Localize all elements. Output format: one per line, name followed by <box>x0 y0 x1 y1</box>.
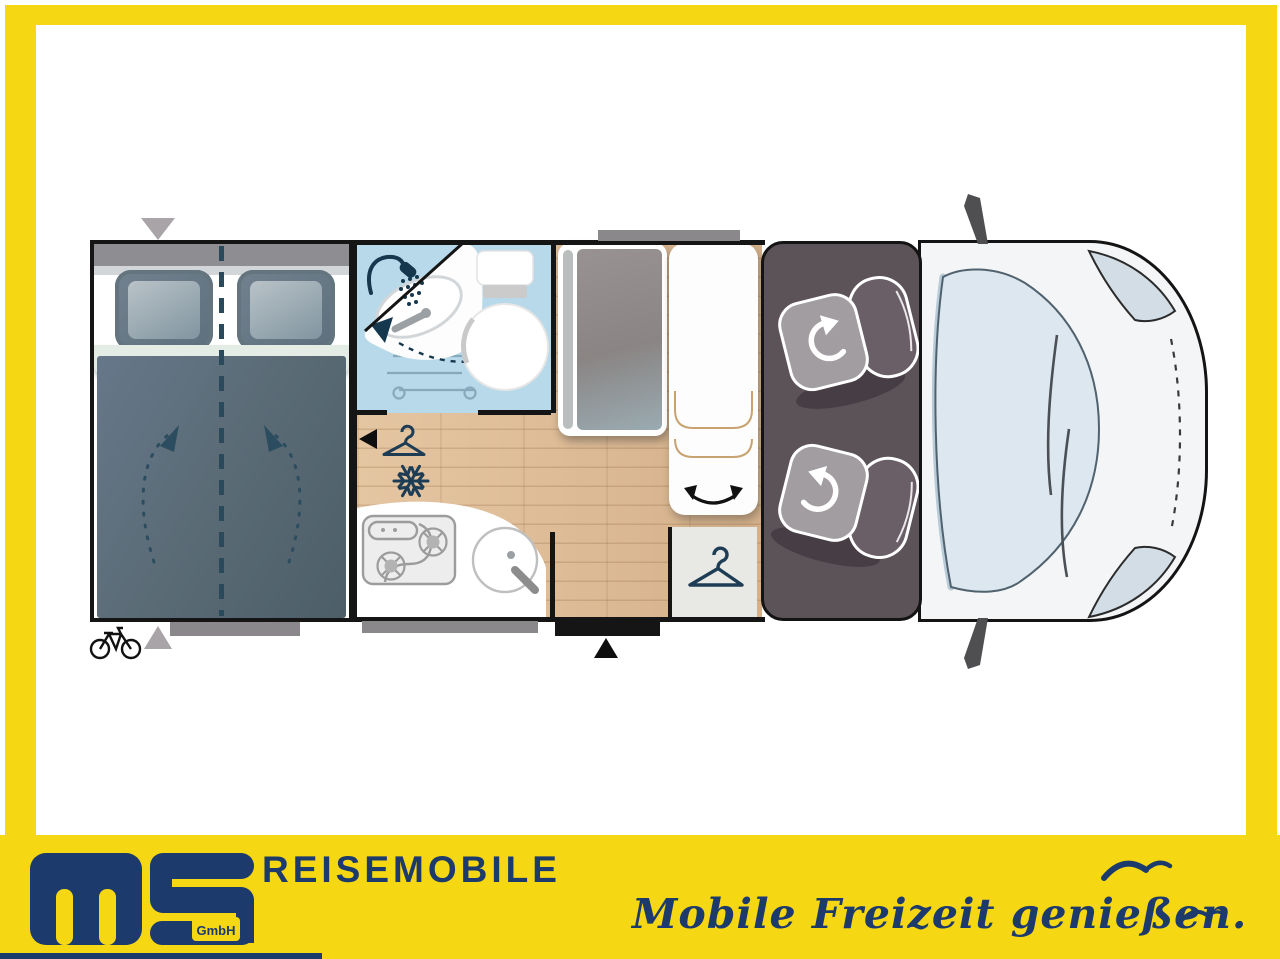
awning-bar <box>598 230 740 241</box>
bottom-edge-navy-strip <box>0 953 322 959</box>
motorhome-floorplan-advert: { "branding": { "company_line": "REISEMO… <box>0 0 1280 959</box>
headlight-left <box>1089 251 1175 321</box>
ms-gmbh-logo: GmbH <box>30 851 256 947</box>
bicycle-icon <box>88 622 144 660</box>
roof-vent-marker <box>141 218 175 240</box>
wardrobe-left-wall <box>668 527 672 619</box>
bench-seat <box>669 243 758 515</box>
table-side-rail <box>563 250 573 429</box>
side-mirror-left <box>956 190 1006 244</box>
kitchen-right-wall <box>550 532 555 620</box>
seagull-icons <box>1098 848 1230 934</box>
washroom-bottom-wall-left <box>357 410 387 415</box>
washroom-bottom-wall-right <box>478 410 551 415</box>
hood-line <box>1171 339 1180 531</box>
bench-rotate-arrow <box>691 495 736 503</box>
wardrobe <box>672 527 757 619</box>
kitchen-sink <box>473 528 537 592</box>
company-line: REISEMOBILE <box>262 849 561 891</box>
bed-fold-arrows <box>94 244 349 618</box>
cab-floor <box>761 241 922 621</box>
wardrobe-marker-arrow <box>359 429 377 449</box>
entry-step <box>555 619 660 636</box>
kitchen-block <box>357 498 550 620</box>
driver-swivel-seat <box>772 272 919 417</box>
logo-letter-m <box>30 853 142 945</box>
garage-flap-rear <box>170 622 300 636</box>
rear-double-bed <box>94 244 349 618</box>
frame-right-band <box>1246 25 1277 835</box>
dinette-table <box>558 243 667 436</box>
logo-gmbh-label: GmbH <box>197 923 236 938</box>
vehicle-front-body <box>918 240 1208 622</box>
fridge-snowflake-icon <box>390 460 432 502</box>
bench-cushion-lines <box>675 391 752 457</box>
frame-left-band <box>5 25 36 835</box>
windshield <box>935 269 1099 591</box>
washroom <box>357 243 551 413</box>
hanger-icon-floor <box>380 423 426 457</box>
passenger-swivel-seat <box>768 434 919 579</box>
table-top <box>577 249 662 430</box>
frame-top-band <box>5 5 1277 25</box>
bedroom-bathroom-divider-wall <box>349 240 357 622</box>
garage-door-marker <box>144 626 172 649</box>
side-mirror-right <box>956 616 1006 672</box>
headlight-right <box>1089 547 1175 617</box>
entry-door-marker <box>594 638 618 658</box>
service-flap-kitchen <box>362 621 538 633</box>
gas-hob <box>363 516 455 584</box>
hanger-icon-wardrobe <box>685 545 745 599</box>
washroom-right-wall <box>551 243 556 413</box>
